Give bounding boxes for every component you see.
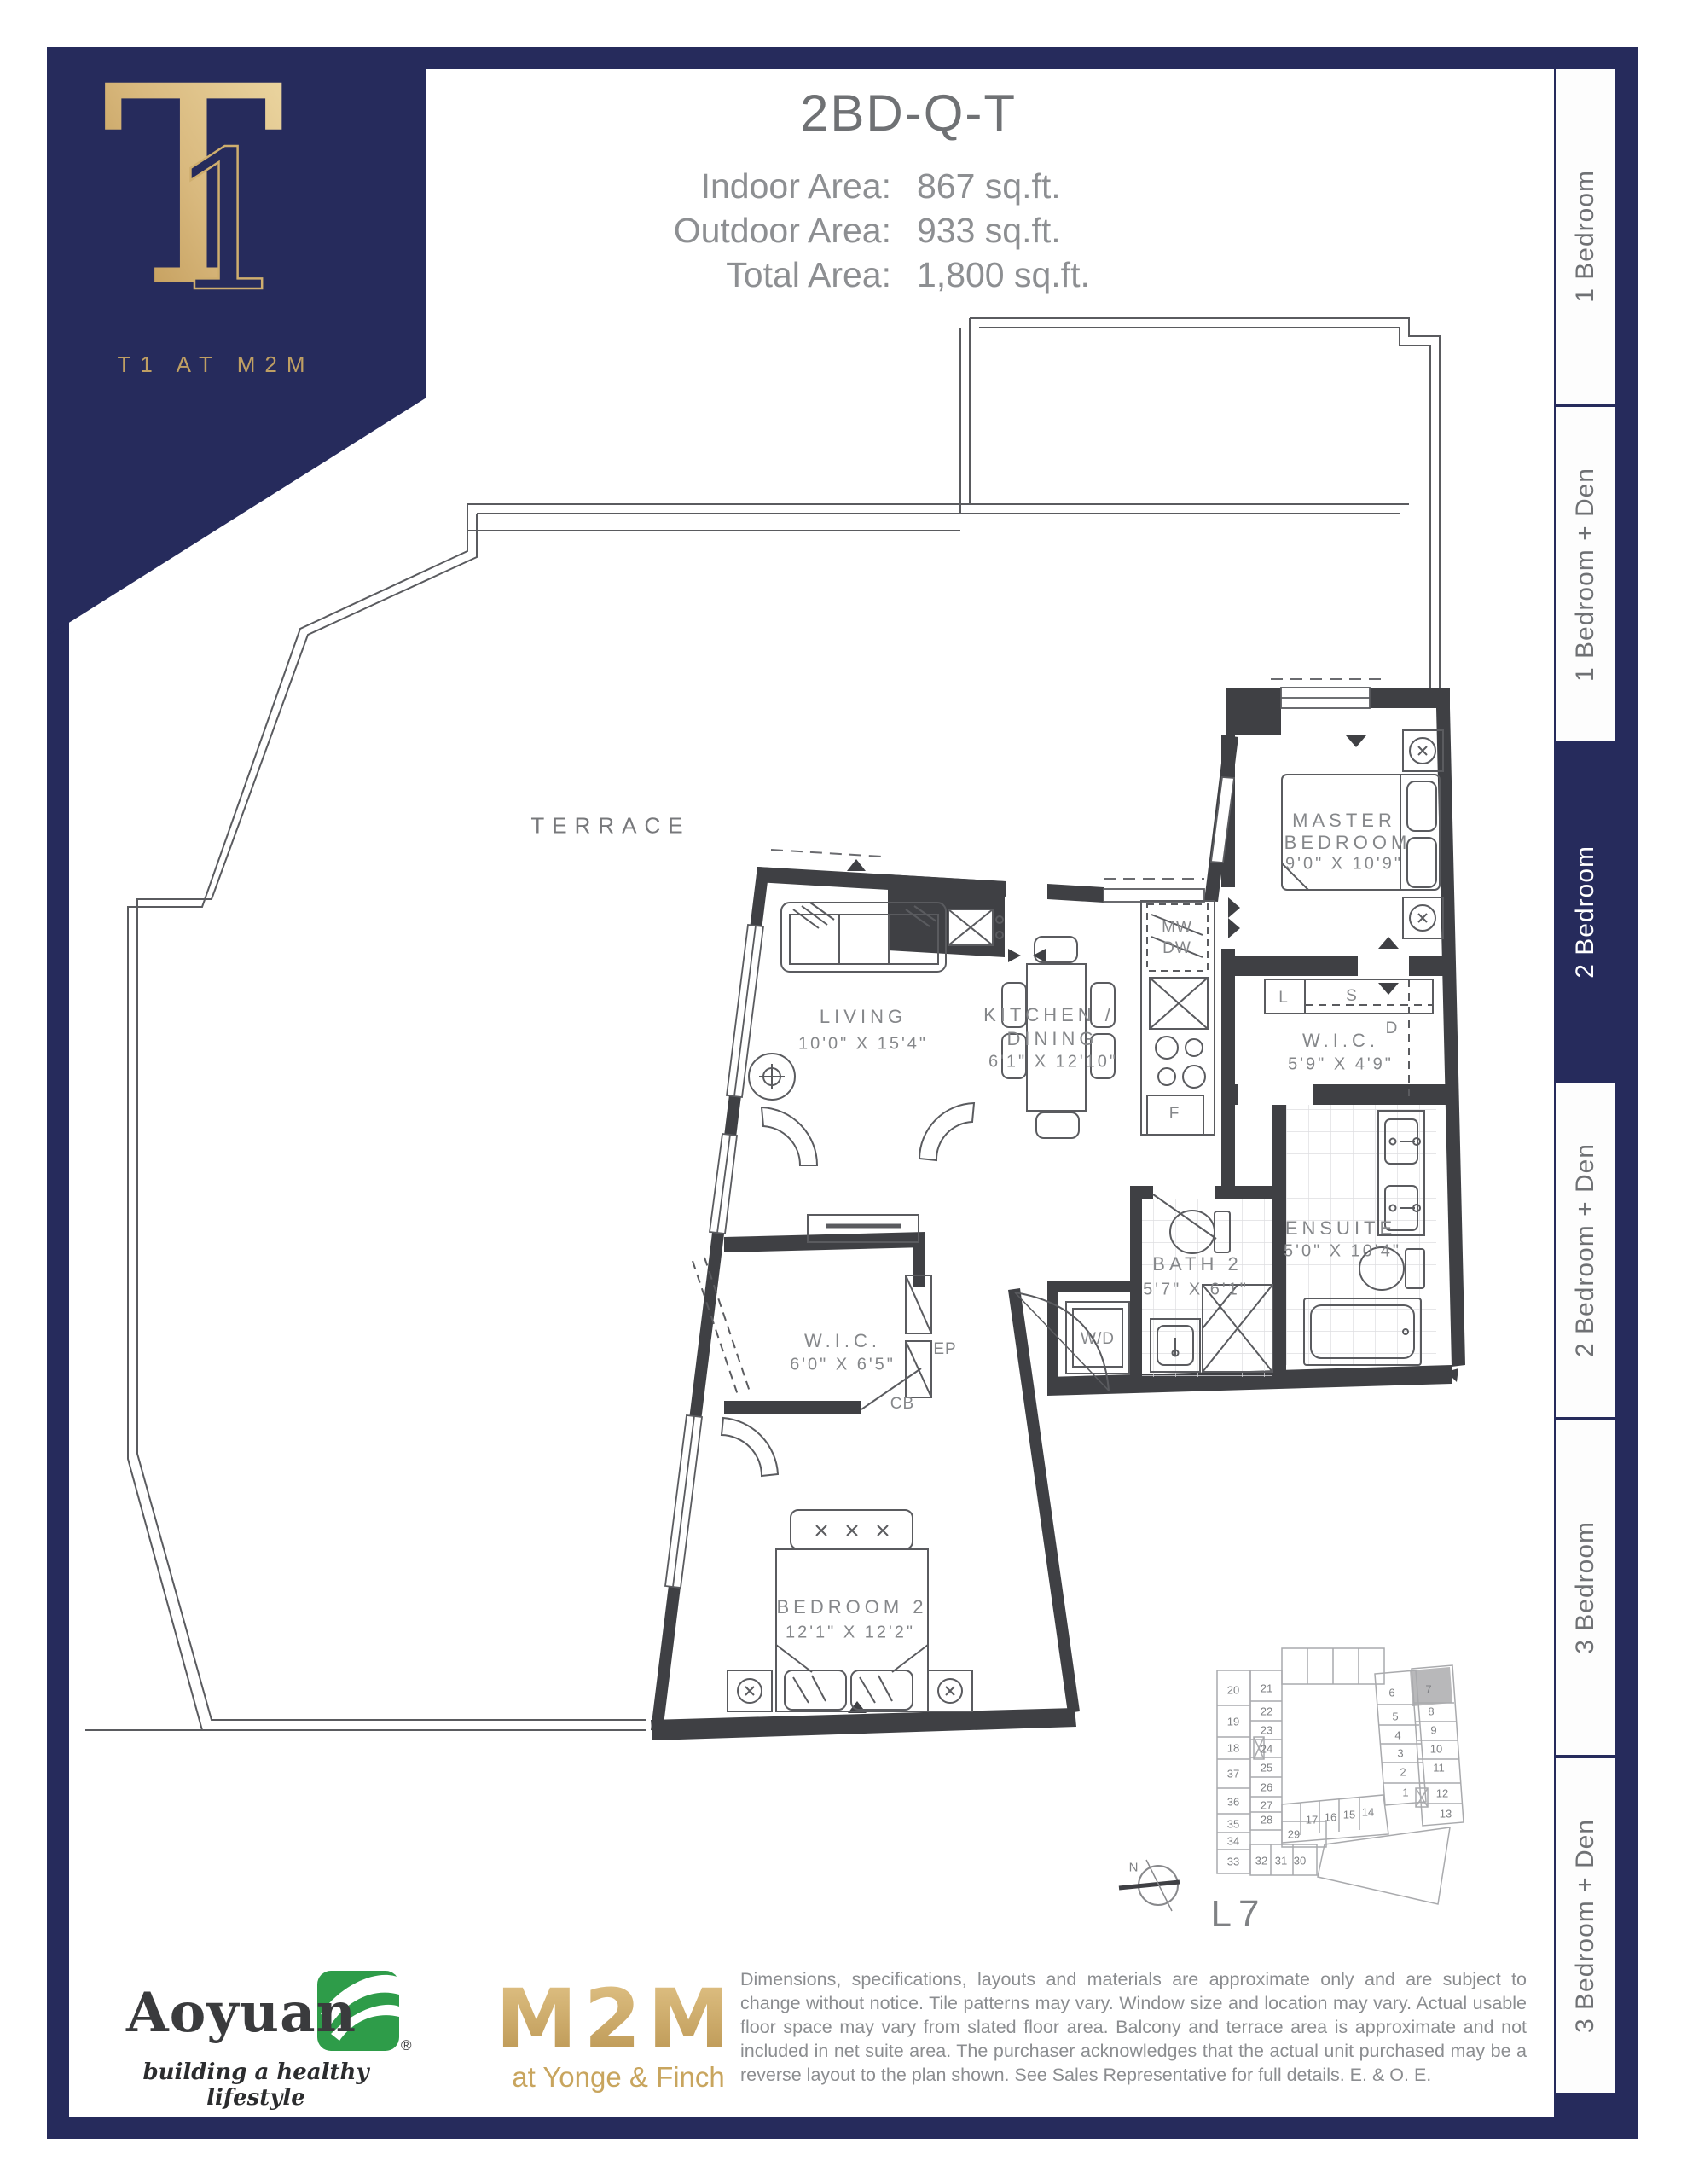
master-bedroom-dims: 9'0" X 10'9" — [1285, 855, 1403, 874]
terrace-outline — [85, 318, 1440, 1730]
wic-bed2-label: W.I.C. — [804, 1330, 881, 1352]
area-row-outdoor: Outdoor Area: 933 sq.ft. — [635, 208, 1139, 253]
wic-master-label: W.I.C. — [1302, 1030, 1379, 1052]
living-dims: 10'0" X 15'4" — [798, 1035, 928, 1054]
north-label: N — [1129, 1861, 1139, 1875]
aoyuan-tagline: building a healthy lifestyle — [102, 2059, 409, 2111]
tab-label: 1 Bedroom — [1571, 170, 1600, 303]
sidebar-tabs: 1 Bedroom1 Bedroom + Den2 Bedroom2 Bedro… — [1554, 69, 1638, 2117]
m2m-logo: M2M — [496, 1972, 736, 2067]
tab-label: 2 Bedroom — [1571, 845, 1600, 979]
total-area-value: 1,800 sq.ft. — [891, 253, 1139, 297]
microwave-label: MW — [1162, 919, 1192, 938]
tab-label: 3 Bedroom — [1571, 1521, 1600, 1654]
tab-1-bedroom[interactable]: 1 Bedroom — [1554, 69, 1615, 407]
total-area-label: Total Area: — [635, 253, 891, 297]
wic-bed2-dims: 6'0" X 6'5" — [790, 1356, 896, 1375]
keyplan — [1217, 1648, 1464, 1904]
living-label: LIVING — [820, 1006, 907, 1028]
disclaimer-text: Dimensions, specifications, layouts and … — [740, 1967, 1527, 2087]
ensuite-label: ENSUITE — [1285, 1217, 1396, 1240]
washer-dryer-label: W/D — [1081, 1330, 1115, 1349]
dresser-label: D — [1386, 1019, 1399, 1038]
outdoor-area-value: 933 sq.ft. — [891, 208, 1139, 253]
master-bedroom-label-2: BEDROOM — [1284, 832, 1412, 854]
keyplan-level-label: L7 — [1211, 1893, 1267, 1936]
tab-3-bedroom-den[interactable]: 3 Bedroom + Den — [1554, 1758, 1615, 2096]
wic-master-dims: 5'9" X 4'9" — [1288, 1055, 1394, 1075]
tab-3-bedroom[interactable]: 3 Bedroom — [1554, 1420, 1615, 1758]
banner-1-glyph: 1 — [167, 111, 289, 334]
tab-2-bedroom[interactable]: 2 Bedroom — [1554, 745, 1615, 1083]
m2m-tagline: at Yonge & Finch — [473, 2061, 763, 2094]
indoor-area-value: 867 sq.ft. — [891, 164, 1139, 208]
cb-label: CB — [890, 1395, 914, 1414]
aoyuan-logo-text: Aoyuan — [126, 1981, 357, 2045]
master-bedroom-label: MASTER — [1292, 810, 1396, 832]
outdoor-area-label: Outdoor Area: — [635, 208, 891, 253]
area-row-total: Total Area: 1,800 sq.ft. — [635, 253, 1139, 297]
m2m-logo-text: M2M — [496, 1972, 736, 2067]
bedroom2-dims: 12'1" X 12'2" — [786, 1623, 915, 1643]
tab-label: 1 Bedroom + Den — [1571, 468, 1600, 682]
tiled-floors — [1142, 1105, 1436, 1377]
brand-banner: T 1 — [47, 29, 426, 636]
linen-label: L — [1278, 989, 1289, 1008]
banner-caption: T1 AT M2M — [92, 351, 339, 378]
tab-1-bedroom-den[interactable]: 1 Bedroom + Den — [1554, 407, 1615, 745]
tab-label: 2 Bedroom + Den — [1571, 1143, 1600, 1357]
kitchen-label-2: DINING — [1007, 1028, 1099, 1050]
shelf-label: S — [1346, 987, 1358, 1006]
area-table: Indoor Area: 867 sq.ft. Outdoor Area: 93… — [635, 164, 1139, 297]
ep-label: EP — [933, 1340, 956, 1359]
plan-title: 2BD-Q-T — [691, 84, 1126, 142]
ensuite-dims: 5'0" X 10'4" — [1284, 1242, 1401, 1262]
windows — [665, 688, 1370, 1588]
bath2-dims: 5'7" X 6'1" — [1143, 1281, 1249, 1300]
bedroom2-label: BEDROOM 2 — [776, 1596, 927, 1618]
kitchen-dims: 6'1" X 12'10" — [988, 1053, 1118, 1072]
kitchen-label: KITCHEN / — [983, 1004, 1115, 1026]
aoyuan-registered-mark: ® — [401, 2037, 412, 2054]
tab-label: 3 Bedroom + Den — [1571, 1819, 1600, 2033]
terrace-label: TERRACE — [530, 813, 690, 839]
dishwasher-label: DW — [1162, 939, 1191, 958]
area-row-indoor: Indoor Area: 867 sq.ft. — [635, 164, 1139, 208]
tab-2-bedroom-den[interactable]: 2 Bedroom + Den — [1554, 1083, 1615, 1420]
page-artwork: T 1 — [0, 0, 1687, 2184]
bath2-label: BATH 2 — [1152, 1253, 1242, 1275]
fridge-label: F — [1169, 1105, 1180, 1124]
indoor-area-label: Indoor Area: — [635, 164, 891, 208]
